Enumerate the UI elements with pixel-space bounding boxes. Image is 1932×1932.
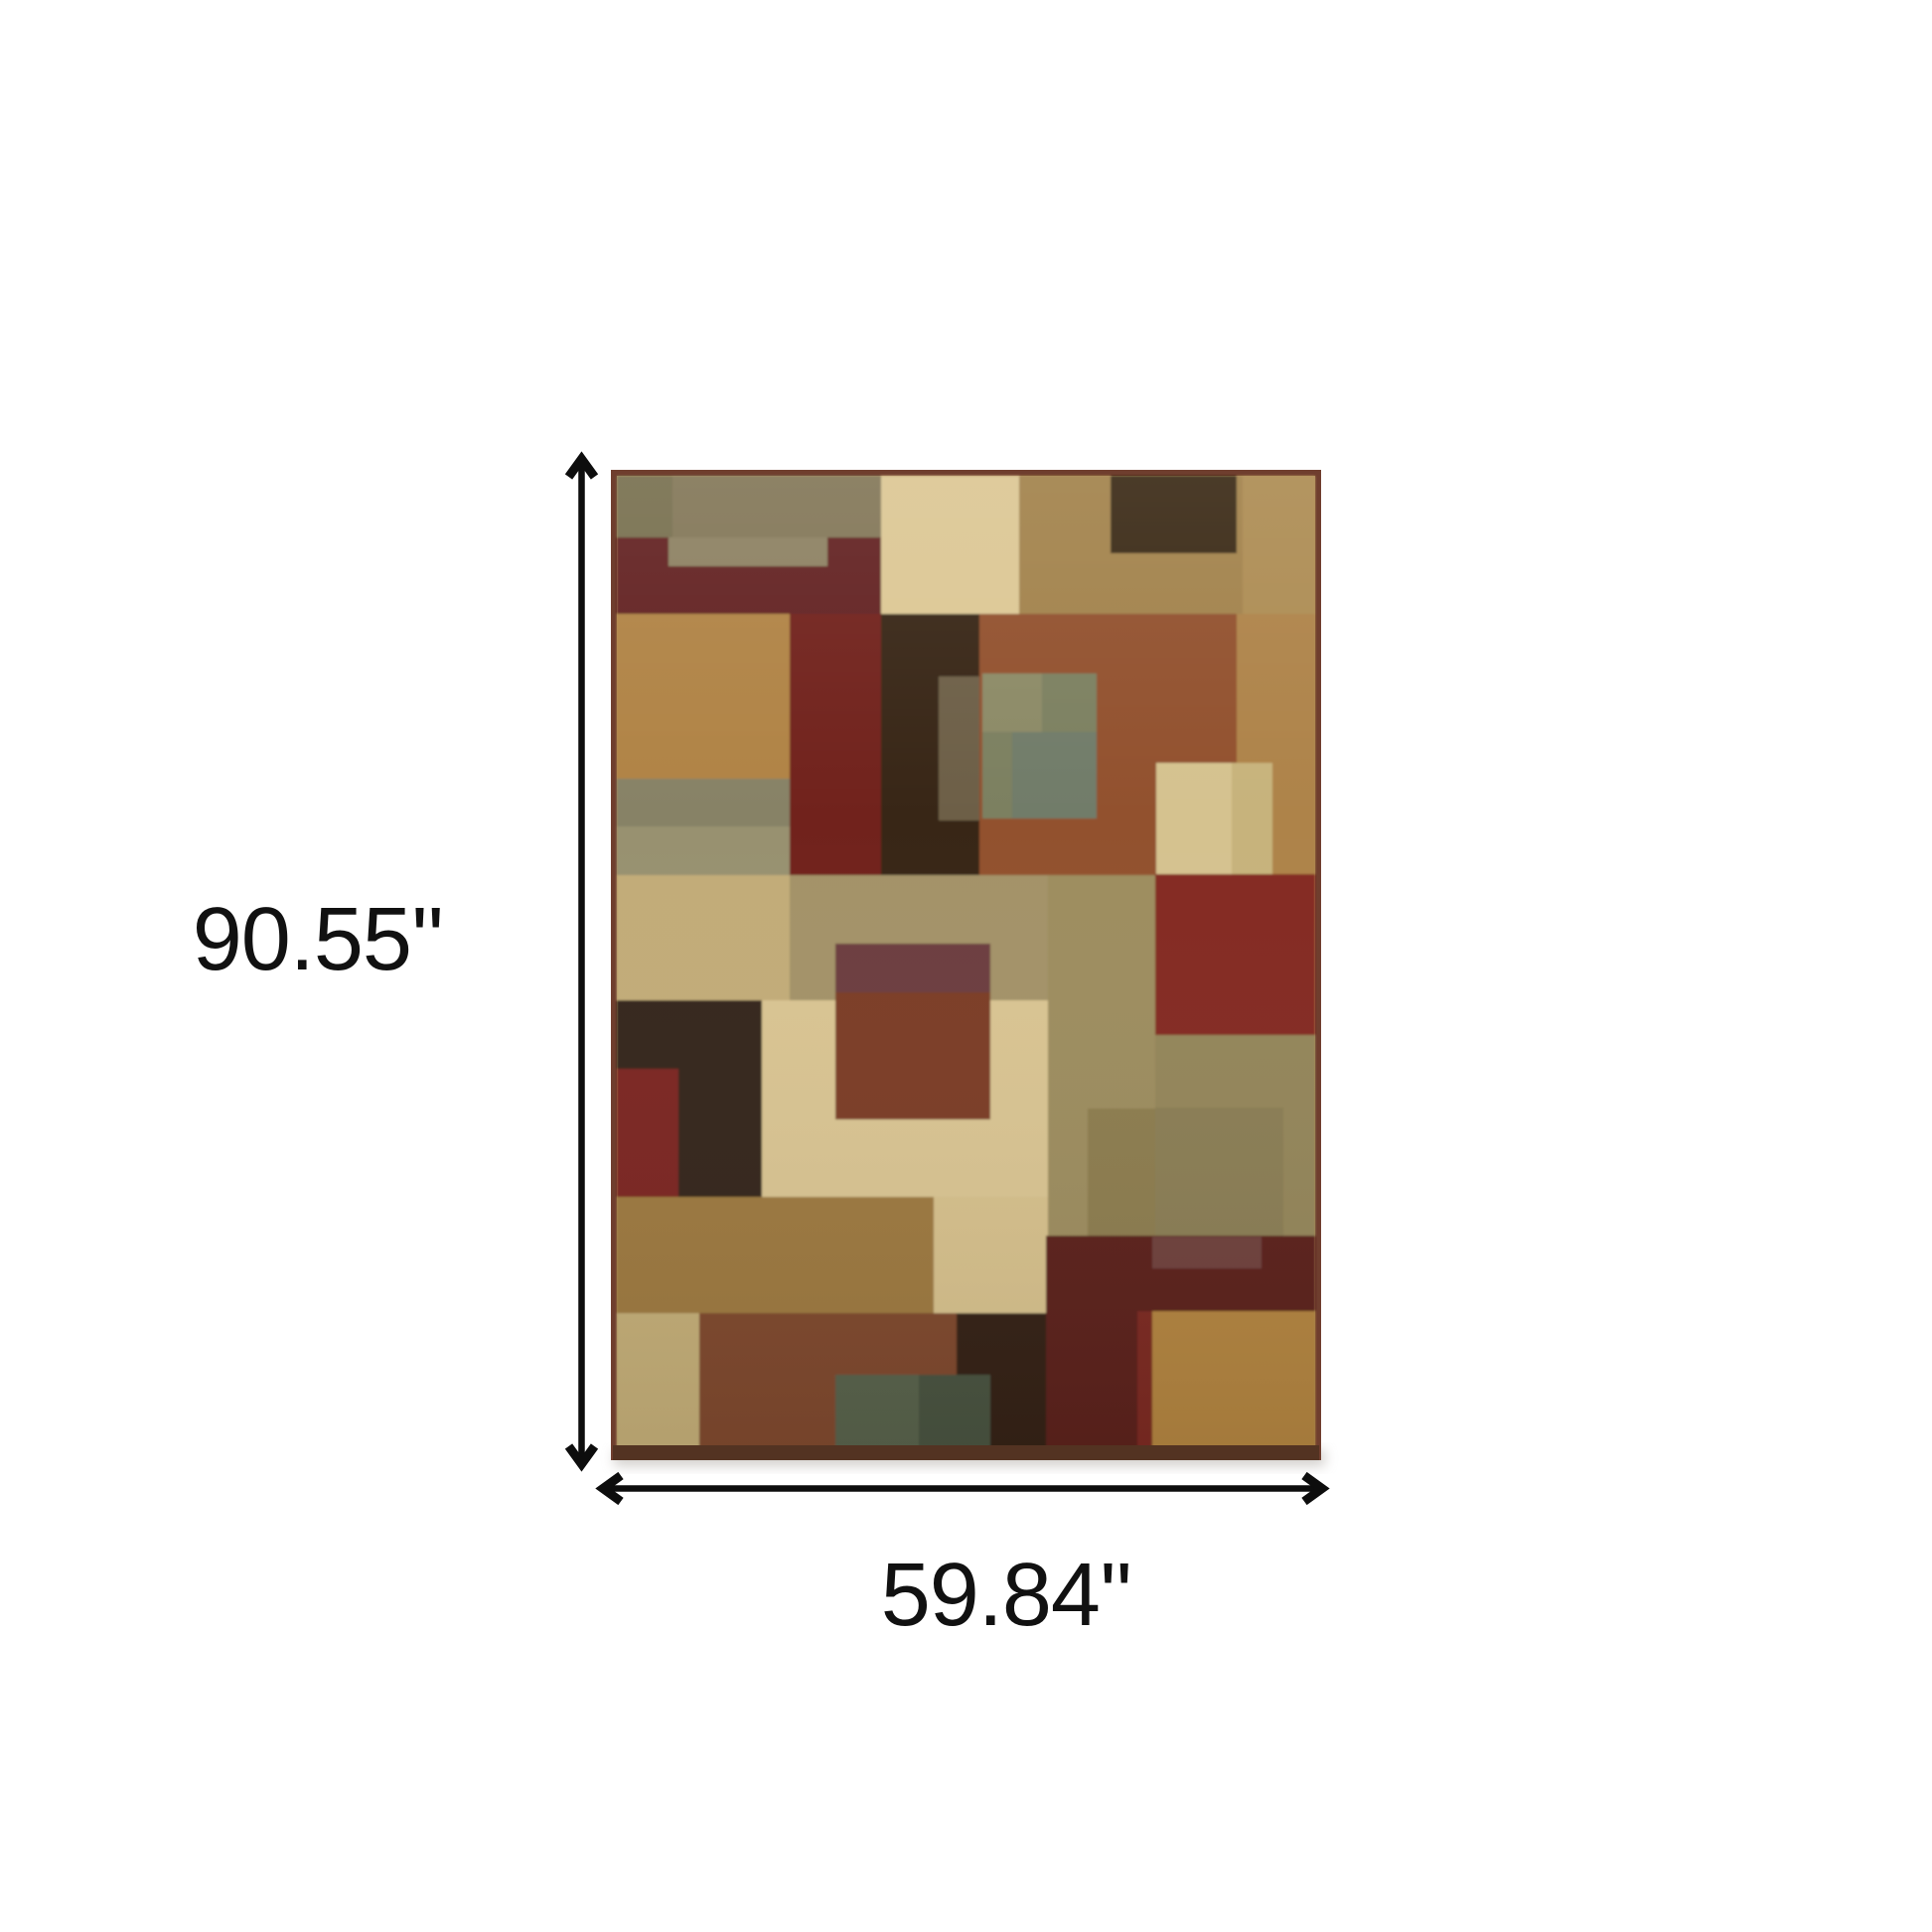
svg-text:59.84'': 59.84'' <box>881 1546 1132 1645</box>
svg-text:90.55'': 90.55'' <box>193 890 444 989</box>
